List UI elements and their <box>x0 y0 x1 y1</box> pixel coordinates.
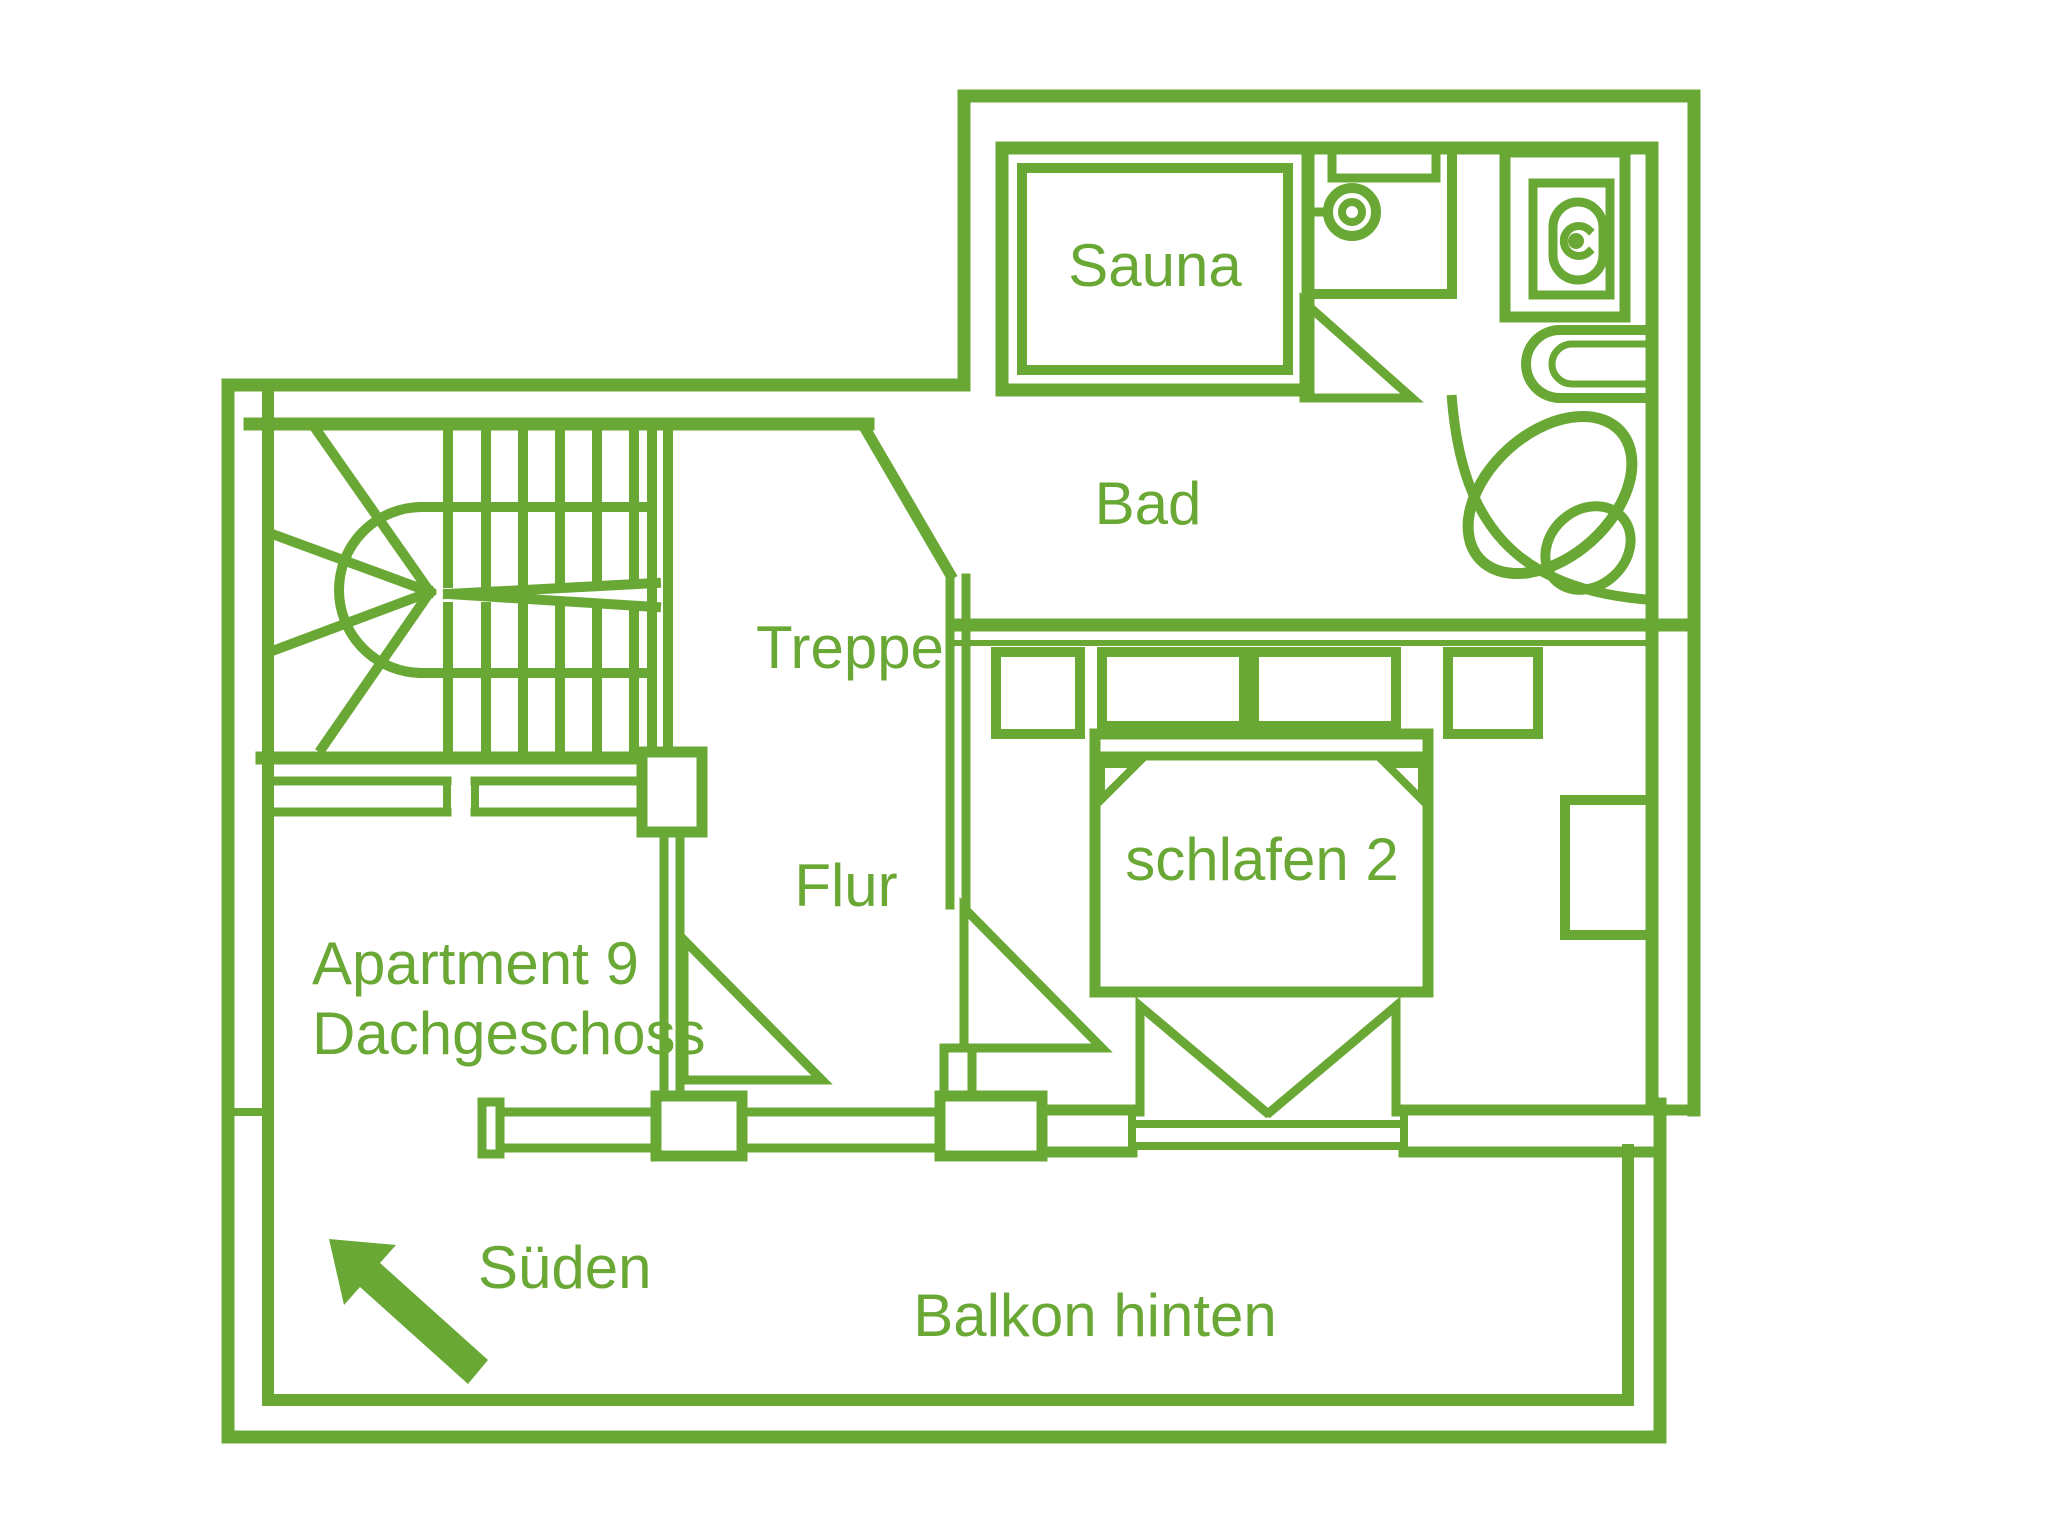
newel-post <box>642 752 702 832</box>
wardrobe-icon <box>996 652 1080 734</box>
pillow-left <box>1101 764 1137 800</box>
wall-post <box>656 1096 742 1156</box>
room-labels: Bad Treppe Flur Apartment 9 Dachgeschoss… <box>312 470 1277 1349</box>
shower-door-swing <box>1304 302 1412 398</box>
bedroom-door-swing <box>964 908 1102 1048</box>
floorplan-svg: Sauna <box>0 0 2048 1538</box>
shower-head-icon <box>1308 188 1376 236</box>
schlafen-label: schlafen 2 <box>1125 826 1399 893</box>
sauna-room: Sauna <box>1002 148 1308 390</box>
wardrobe-icon <box>1254 652 1396 726</box>
wardrobe-icon <box>1448 652 1538 734</box>
apartment-label-line1: Apartment 9 <box>312 930 639 997</box>
corner-bathtub-icon <box>1438 385 1662 607</box>
pillow-right <box>1386 764 1422 800</box>
flur-label: Flur <box>794 852 897 919</box>
outer-walls <box>228 96 1694 1437</box>
sueden-label: Süden <box>478 1234 652 1301</box>
stairs-icon <box>262 424 700 758</box>
toilet-icon <box>1505 152 1625 317</box>
south-arrow-icon <box>329 1239 488 1384</box>
washbasin-icon <box>1526 330 1652 398</box>
door-post <box>944 1048 972 1096</box>
treppe-label: Treppe <box>756 614 944 681</box>
floorplan-page: Sauna <box>0 0 2048 1538</box>
bad-label: Bad <box>1095 470 1202 537</box>
compass: Süden <box>329 1234 652 1384</box>
shower <box>1308 148 1452 294</box>
wardrobe-icon <box>1102 652 1244 726</box>
apartment-label-line2: Dachgeschoss <box>312 1000 706 1067</box>
wall-post <box>940 1096 1042 1156</box>
balcony-double-door <box>1140 1006 1396 1112</box>
balcony-sills <box>482 1096 1694 1156</box>
dresser-icon <box>1565 800 1652 935</box>
bad-door-swing <box>866 430 950 574</box>
sauna-label: Sauna <box>1068 232 1242 299</box>
staircase <box>262 424 702 832</box>
balkon-label: Balkon hinten <box>913 1282 1277 1349</box>
bedroom: schlafen 2 <box>996 652 1652 992</box>
